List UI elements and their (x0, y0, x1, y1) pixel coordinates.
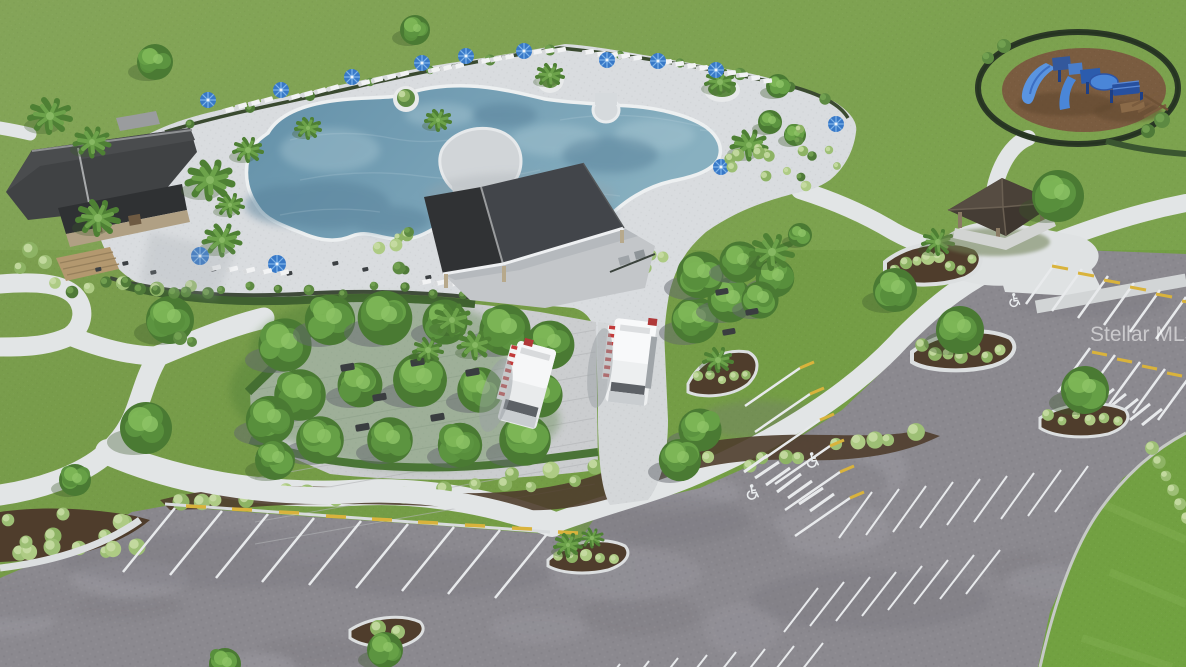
svg-text:Stellar MLS: Stellar MLS (1090, 323, 1186, 346)
